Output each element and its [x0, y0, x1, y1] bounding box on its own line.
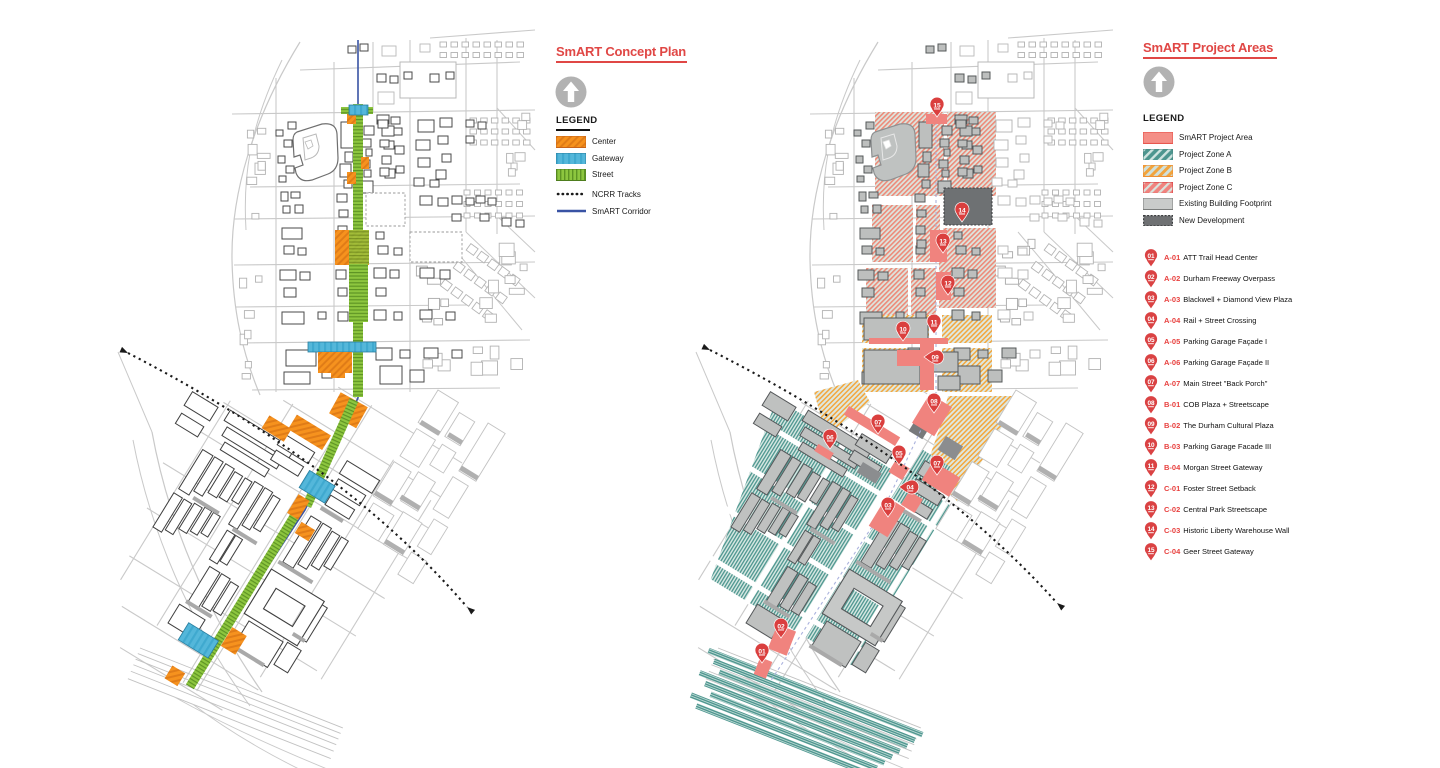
svg-text:03: 03	[1147, 294, 1155, 301]
svg-text:06: 06	[1147, 357, 1155, 364]
svg-text:04: 04	[907, 484, 915, 491]
svg-text:15: 15	[1147, 546, 1155, 553]
svg-text:04: 04	[1147, 315, 1155, 322]
svg-text:12: 12	[1147, 483, 1155, 490]
svg-text:14: 14	[1147, 525, 1155, 532]
svg-text:01: 01	[1147, 252, 1155, 259]
svg-text:13: 13	[1147, 504, 1155, 511]
svg-text:05: 05	[1147, 336, 1155, 343]
svg-text:11: 11	[1148, 462, 1155, 469]
svg-text:07: 07	[1147, 378, 1155, 385]
svg-text:02: 02	[1147, 273, 1155, 280]
svg-text:08: 08	[1147, 399, 1155, 406]
svg-text:09: 09	[1147, 420, 1155, 427]
svg-text:09: 09	[932, 354, 940, 361]
svg-text:10: 10	[1147, 441, 1155, 448]
